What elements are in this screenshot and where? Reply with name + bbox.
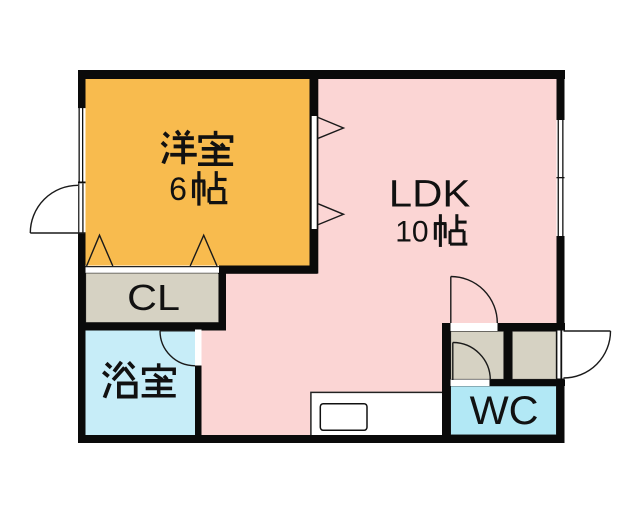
svg-text:CL: CL [127,277,180,318]
svg-text:6: 6 [169,171,187,207]
svg-text:10: 10 [395,216,428,249]
svg-text:LDK: LDK [389,174,471,216]
svg-text:WC: WC [470,389,539,433]
